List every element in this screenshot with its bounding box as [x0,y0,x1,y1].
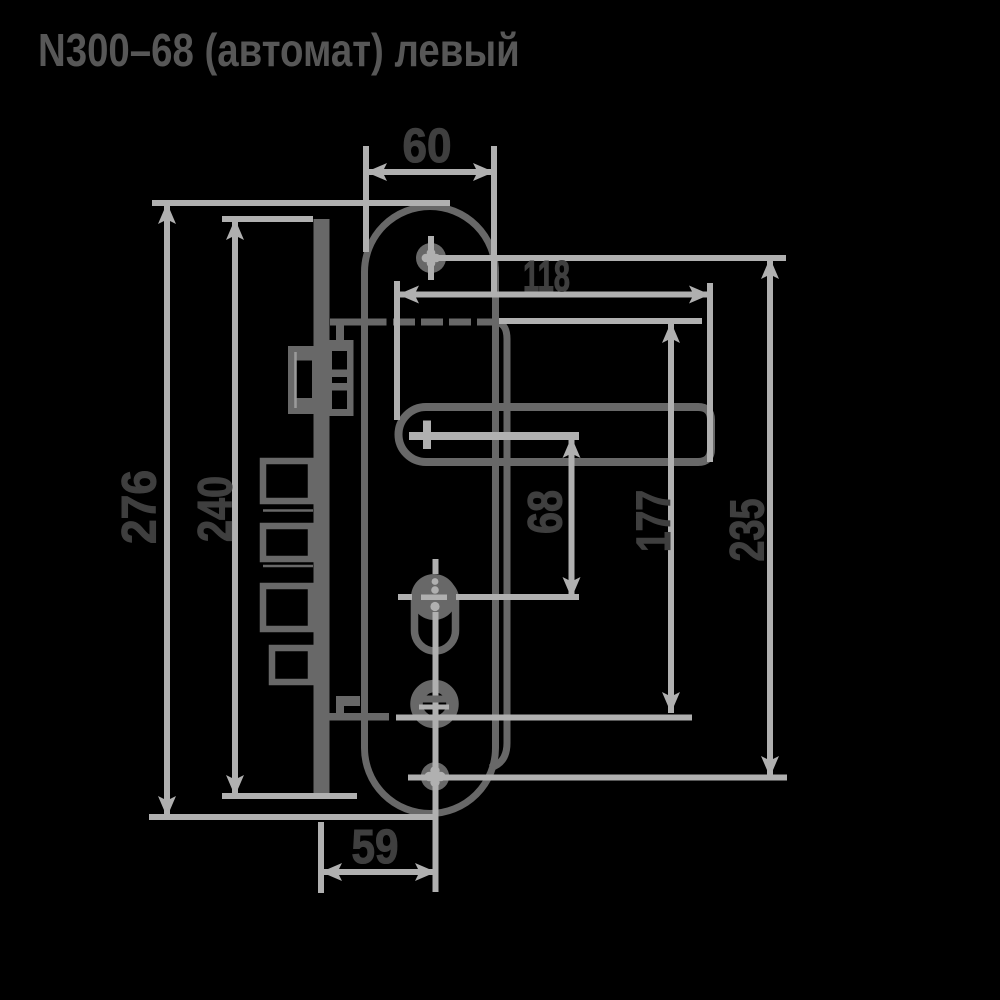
svg-text:118: 118 [523,252,570,301]
svg-text:276: 276 [114,470,167,544]
svg-text:59: 59 [352,821,399,874]
svg-text:60: 60 [403,120,452,173]
svg-text:177: 177 [628,490,681,552]
svg-text:N300–68 (автомат) левый: N300–68 (автомат) левый [38,25,520,76]
svg-text:68: 68 [520,490,573,534]
svg-text:235: 235 [722,499,775,562]
svg-text:240: 240 [190,476,243,542]
